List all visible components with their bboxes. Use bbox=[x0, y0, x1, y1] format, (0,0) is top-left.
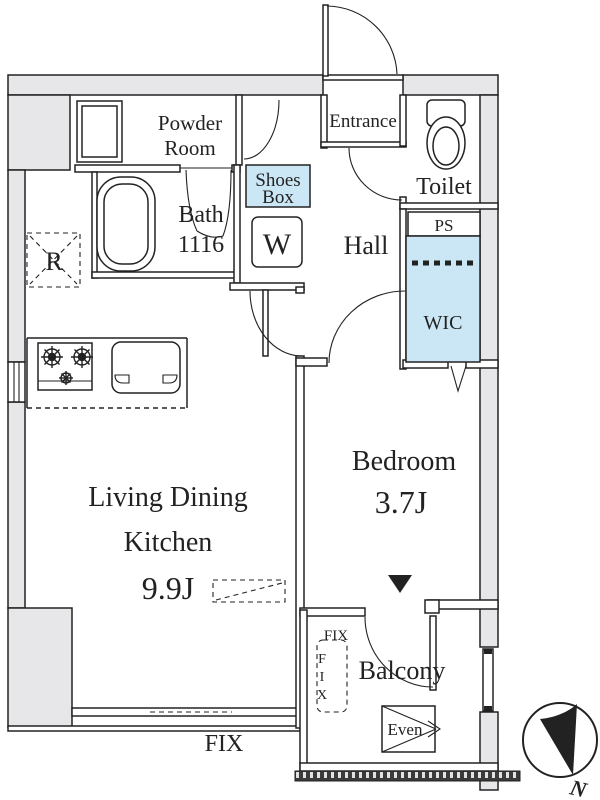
hall-label: Hall bbox=[344, 231, 389, 260]
wall-bedroom-top-left bbox=[296, 358, 327, 366]
wall-hall-ldk-top bbox=[230, 283, 304, 290]
bath-label: Bath bbox=[178, 202, 223, 228]
washbasin-inner bbox=[82, 106, 117, 157]
balcony-fix-letter-i: I bbox=[320, 670, 325, 685]
wall-balcony-top bbox=[300, 608, 365, 616]
wall-left-column bbox=[8, 608, 72, 727]
entrance-threshold-outer bbox=[323, 75, 403, 80]
ldk-area-label: 9.9J bbox=[142, 570, 194, 606]
bath-door-fold-right bbox=[223, 170, 231, 236]
wall-toilet-left-upper bbox=[400, 95, 406, 146]
powder-room-label-2: Room bbox=[164, 136, 215, 160]
entrance-door-leaf bbox=[323, 5, 328, 76]
wall-toilet-bottom bbox=[400, 203, 498, 209]
entrance-label: Entrance bbox=[329, 111, 397, 132]
outer-edge-bottom bbox=[8, 726, 300, 731]
wall-top-left bbox=[8, 75, 323, 95]
shoes-box-label-2: Box bbox=[262, 187, 294, 208]
bath-size-label: 1116 bbox=[178, 232, 224, 258]
wall-powder-bottom bbox=[75, 165, 180, 172]
pipe-space-label: PS bbox=[435, 216, 454, 235]
balcony-edge-hatch bbox=[295, 771, 520, 781]
sink-icon bbox=[112, 342, 180, 393]
balcony-partition bbox=[483, 649, 493, 711]
wall-balcony-bottom bbox=[300, 763, 498, 771]
ldk-label-1: Living Dining bbox=[88, 482, 247, 513]
balcony-door-jamb bbox=[425, 600, 439, 613]
wic-area bbox=[406, 236, 480, 362]
compass-icon: N bbox=[523, 703, 597, 800]
wall-top-right bbox=[403, 75, 498, 95]
wall-powder-hall bbox=[236, 95, 242, 165]
wall-balcony-left bbox=[300, 610, 307, 770]
bedroom-label: Bedroom bbox=[352, 446, 456, 477]
left-window bbox=[8, 362, 25, 402]
ldk-label-2: Kitchen bbox=[124, 527, 213, 558]
floor-plan: N Powder Room Bath 1116 Shoes Box W R En… bbox=[0, 0, 600, 800]
wall-ldk-stub bbox=[296, 287, 304, 293]
wall-left-lower bbox=[8, 402, 25, 608]
wall-left-upper bbox=[8, 170, 25, 362]
balcony-fix-letter-f: F bbox=[318, 652, 326, 667]
ldk-door-leaf bbox=[263, 290, 268, 356]
entrance-door-arc bbox=[327, 6, 397, 74]
ldk-door-arc bbox=[250, 291, 301, 356]
toilet-label: Toilet bbox=[416, 174, 472, 200]
wic-door-mark bbox=[451, 366, 466, 391]
wall-bath-bottom bbox=[92, 272, 238, 278]
ldk-dashed-counter bbox=[213, 580, 285, 602]
washer-label: W bbox=[263, 228, 292, 261]
bathtub-inner bbox=[104, 184, 148, 264]
north-label: N bbox=[567, 774, 591, 800]
entrance-step bbox=[321, 142, 406, 147]
powder-room-label-1: Powder bbox=[158, 111, 222, 135]
balcony-access-triangle bbox=[388, 575, 412, 593]
powder-door-arc bbox=[244, 100, 279, 159]
wall-nook bbox=[8, 95, 70, 170]
wall-wic-left bbox=[400, 209, 406, 369]
bedroom-door-arc bbox=[329, 291, 405, 363]
wic-label: WIC bbox=[424, 312, 463, 334]
north-needle bbox=[540, 704, 577, 775]
floor-plan-canvas: N Powder Room Bath 1116 Shoes Box W R En… bbox=[0, 0, 600, 800]
wall-entrance-left bbox=[321, 95, 327, 148]
refrigerator-label: R bbox=[45, 247, 63, 276]
fix-window-ldk bbox=[72, 708, 298, 716]
bedroom-area-label: 3.7J bbox=[375, 484, 427, 520]
fix-window-label: FIX bbox=[205, 731, 244, 757]
wall-bath-right bbox=[234, 165, 240, 283]
toilet-bowl-inner bbox=[433, 127, 459, 165]
toilet-door-arc bbox=[349, 148, 402, 200]
balcony-fix-letter-x: X bbox=[317, 688, 327, 703]
hatch-label: Even bbox=[388, 720, 423, 739]
balcony-label: Balcony bbox=[359, 656, 446, 685]
kitchen-counter bbox=[27, 338, 187, 408]
wall-right-upper bbox=[480, 95, 498, 647]
balcony-fix-label: FIX bbox=[324, 628, 348, 644]
